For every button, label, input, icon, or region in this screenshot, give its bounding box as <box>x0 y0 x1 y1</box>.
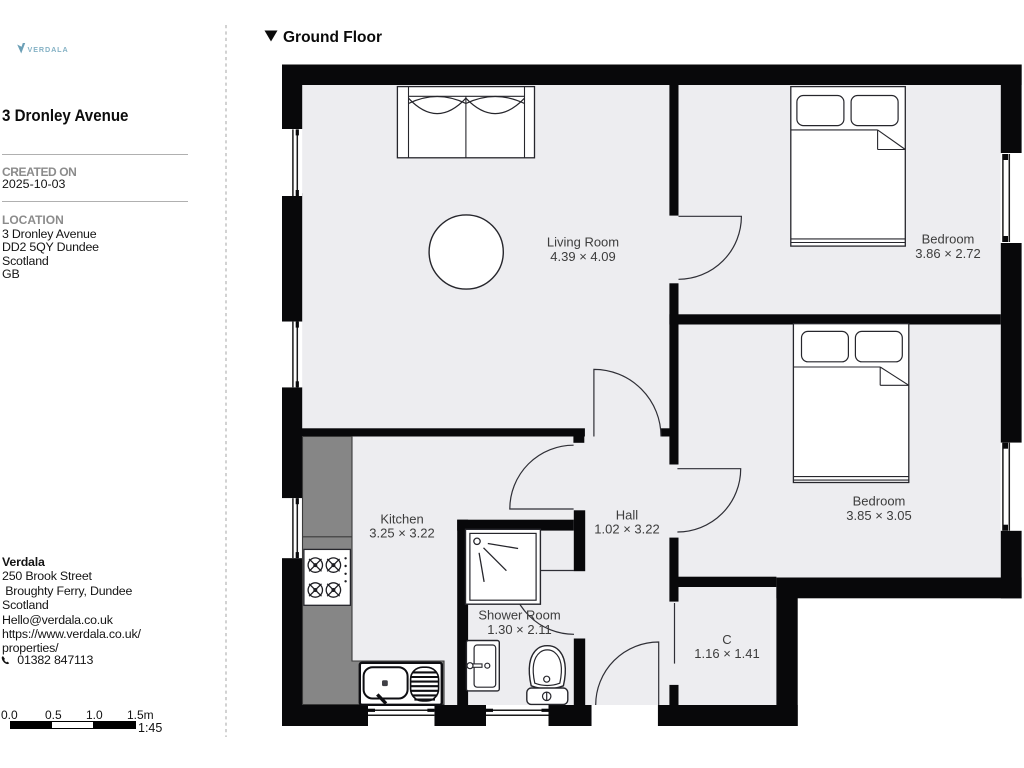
svg-text:Living Room: Living Room <box>547 235 619 250</box>
svg-text:Shower Room: Shower Room <box>478 608 560 623</box>
svg-text:1.02 × 3.22: 1.02 × 3.22 <box>594 522 659 537</box>
svg-text:1.30 × 2.11: 1.30 × 2.11 <box>487 622 551 637</box>
svg-text:3.25 × 3.22: 3.25 × 3.22 <box>369 526 434 541</box>
svg-text:Bedroom: Bedroom <box>922 232 975 247</box>
svg-text:Hall: Hall <box>616 508 639 523</box>
svg-text:Bedroom: Bedroom <box>853 494 906 509</box>
svg-text:4.39 × 4.09: 4.39 × 4.09 <box>550 249 615 264</box>
svg-text:Kitchen: Kitchen <box>380 512 423 527</box>
svg-text:3.85 × 3.05: 3.85 × 3.05 <box>846 508 911 523</box>
svg-text:1.16 × 1.41: 1.16 × 1.41 <box>694 646 759 661</box>
svg-text:C: C <box>722 632 731 647</box>
svg-text:3.86 × 2.72: 3.86 × 2.72 <box>915 246 980 261</box>
